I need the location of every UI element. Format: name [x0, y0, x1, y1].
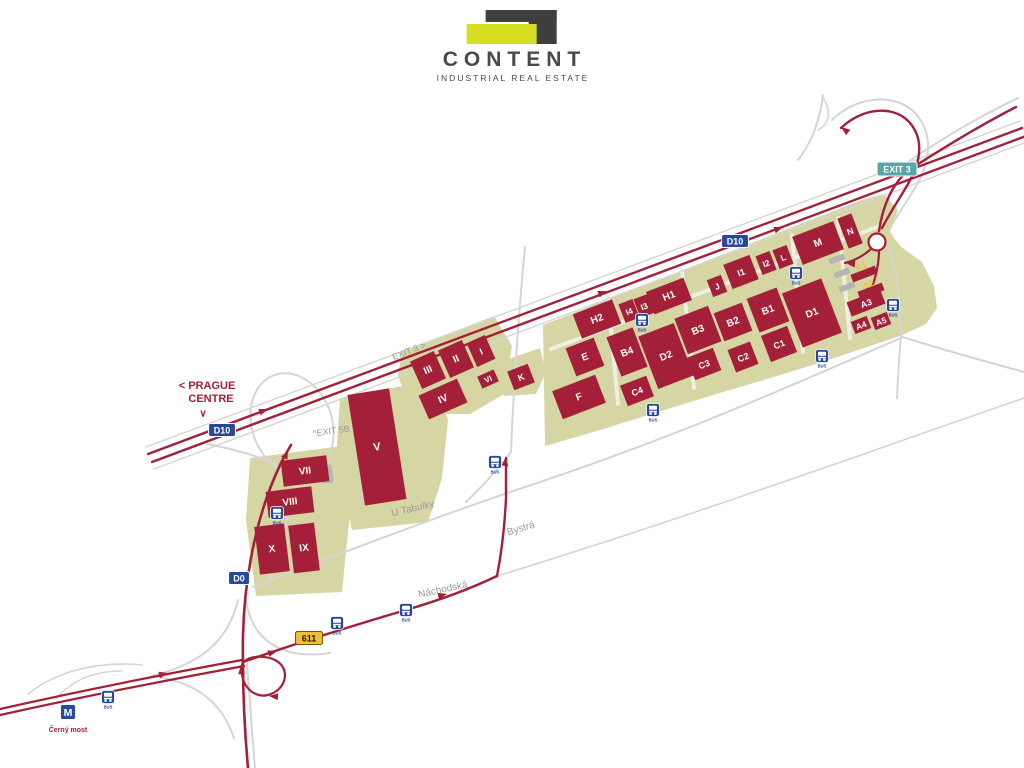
road-badge-d10: D10: [722, 235, 749, 248]
building-x[interactable]: X: [254, 523, 290, 574]
map-label--: ∨: [199, 409, 206, 420]
bus-stop-caption: BUS: [104, 705, 113, 710]
bus-stop-caption: BUS: [273, 521, 282, 526]
bus-stop-caption: BUS: [889, 313, 898, 318]
bus-stop-icon: BUS: [102, 691, 115, 710]
road-d0-ramp-sw: [152, 676, 234, 738]
bus-stop-icon: BUS: [331, 617, 344, 636]
badge-text: D10: [214, 426, 231, 436]
badge-text: D10: [727, 237, 744, 247]
svg-text:M: M: [64, 707, 73, 719]
building-label: VII: [298, 465, 312, 477]
road-badge-d10: D10: [209, 424, 236, 437]
road-d0-south-edge: [247, 664, 255, 768]
badge-text: EXIT 3: [883, 165, 911, 175]
bus-stop-caption: BUS: [402, 618, 411, 623]
bus-stop-caption: BUS: [333, 631, 342, 636]
map-label-bystr-: Bystrá: [506, 519, 537, 538]
metro-station-icon: MČerný most: [49, 705, 88, 734]
bus-stop-icon: BUS: [489, 456, 502, 475]
map-label-centre: CENTRE: [188, 393, 233, 405]
bus-stop-caption: BUS: [649, 418, 658, 423]
logo-subtitle: INDUSTRIAL REAL ESTATE: [435, 73, 590, 83]
bus-stop-caption: BUS: [491, 470, 500, 475]
page: H2I4I3H1JI1I2LMNEB4D2B3B2B1D1C4C3C2C1FKA…: [0, 0, 1024, 768]
road-u-tabulky-east: [903, 337, 1024, 372]
road-campus-south-branch: [897, 336, 901, 398]
bus-stop-icon: BUS: [816, 350, 829, 369]
badge-text: 611: [302, 634, 317, 644]
road-chlumecka-1: [0, 660, 242, 709]
building-label: IX: [299, 542, 310, 554]
road-d0-ramp-w: [152, 600, 238, 676]
roundabout: [869, 234, 886, 251]
badge-text: D0: [233, 574, 245, 584]
logo-mark-icon: [467, 10, 557, 44]
bus-stop-caption: BUS: [638, 328, 647, 333]
metro-station-caption: Černý most: [49, 725, 88, 734]
site-map: H2I4I3H1JI1I2LMNEB4D2B3B2B1D1C4C3C2C1FKA…: [0, 0, 1024, 768]
logo-yellow-shape: [467, 24, 537, 44]
road-bystra: [497, 458, 506, 576]
bus-stop-caption: BUS: [818, 364, 827, 369]
road-underpass-connector: [511, 247, 525, 452]
building-vii[interactable]: VII: [281, 455, 330, 486]
route-arrow-icon: [267, 648, 278, 657]
logo-title: CONTENT: [435, 48, 590, 72]
building-label: VIII: [282, 496, 298, 509]
bus-stop-caption: BUS: [792, 281, 801, 286]
road-chlumecka-2: [0, 666, 244, 715]
road-badge-exit3: EXIT 3: [877, 162, 917, 176]
road-badge-611: 611: [296, 632, 323, 645]
bus-stop-icon: BUS: [647, 404, 660, 423]
bus-stop-icon: BUS: [400, 604, 413, 623]
road-badge-d0: D0: [229, 572, 250, 585]
road-exit3-gray-n: [798, 95, 823, 160]
map-label--prague: < PRAGUE: [179, 380, 236, 392]
logo: CONTENT INDUSTRIAL REAL ESTATE: [435, 10, 590, 83]
